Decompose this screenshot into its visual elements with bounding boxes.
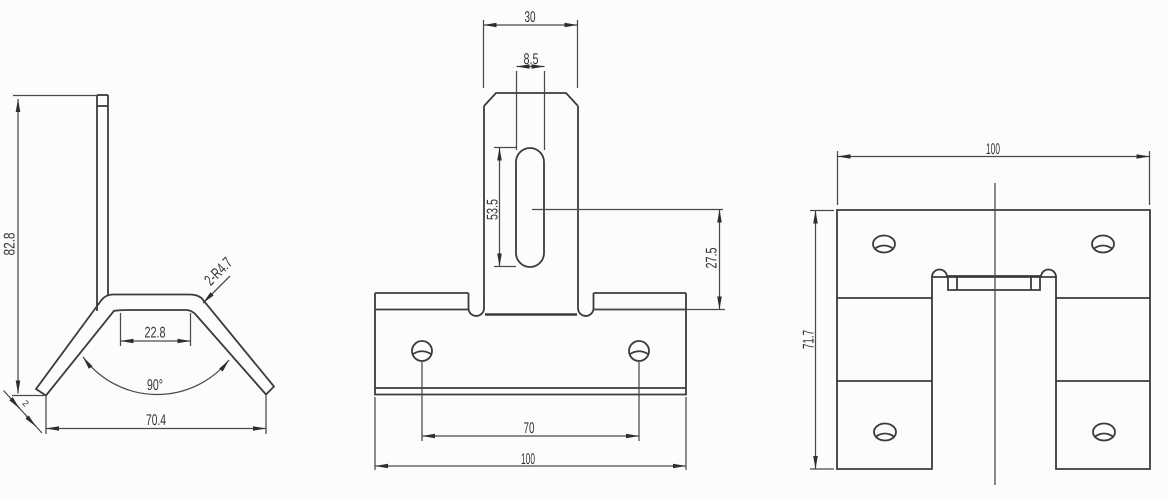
svg-text:2: 2 (20, 398, 31, 409)
svg-text:70: 70 (524, 420, 535, 437)
svg-text:27.5: 27.5 (704, 248, 721, 269)
svg-text:82.8: 82.8 (2, 233, 19, 256)
svg-text:2-R4.7: 2-R4.7 (201, 254, 236, 289)
svg-text:22.8: 22.8 (145, 325, 166, 342)
svg-text:100: 100 (521, 451, 535, 468)
svg-text:8.5: 8.5 (524, 51, 539, 68)
svg-text:53.5: 53.5 (485, 199, 502, 220)
svg-text:30: 30 (525, 9, 536, 26)
svg-text:100: 100 (986, 141, 1000, 158)
svg-text:71.7: 71.7 (801, 330, 818, 349)
svg-text:70.4: 70.4 (146, 412, 166, 429)
svg-text:90°: 90° (147, 377, 163, 394)
